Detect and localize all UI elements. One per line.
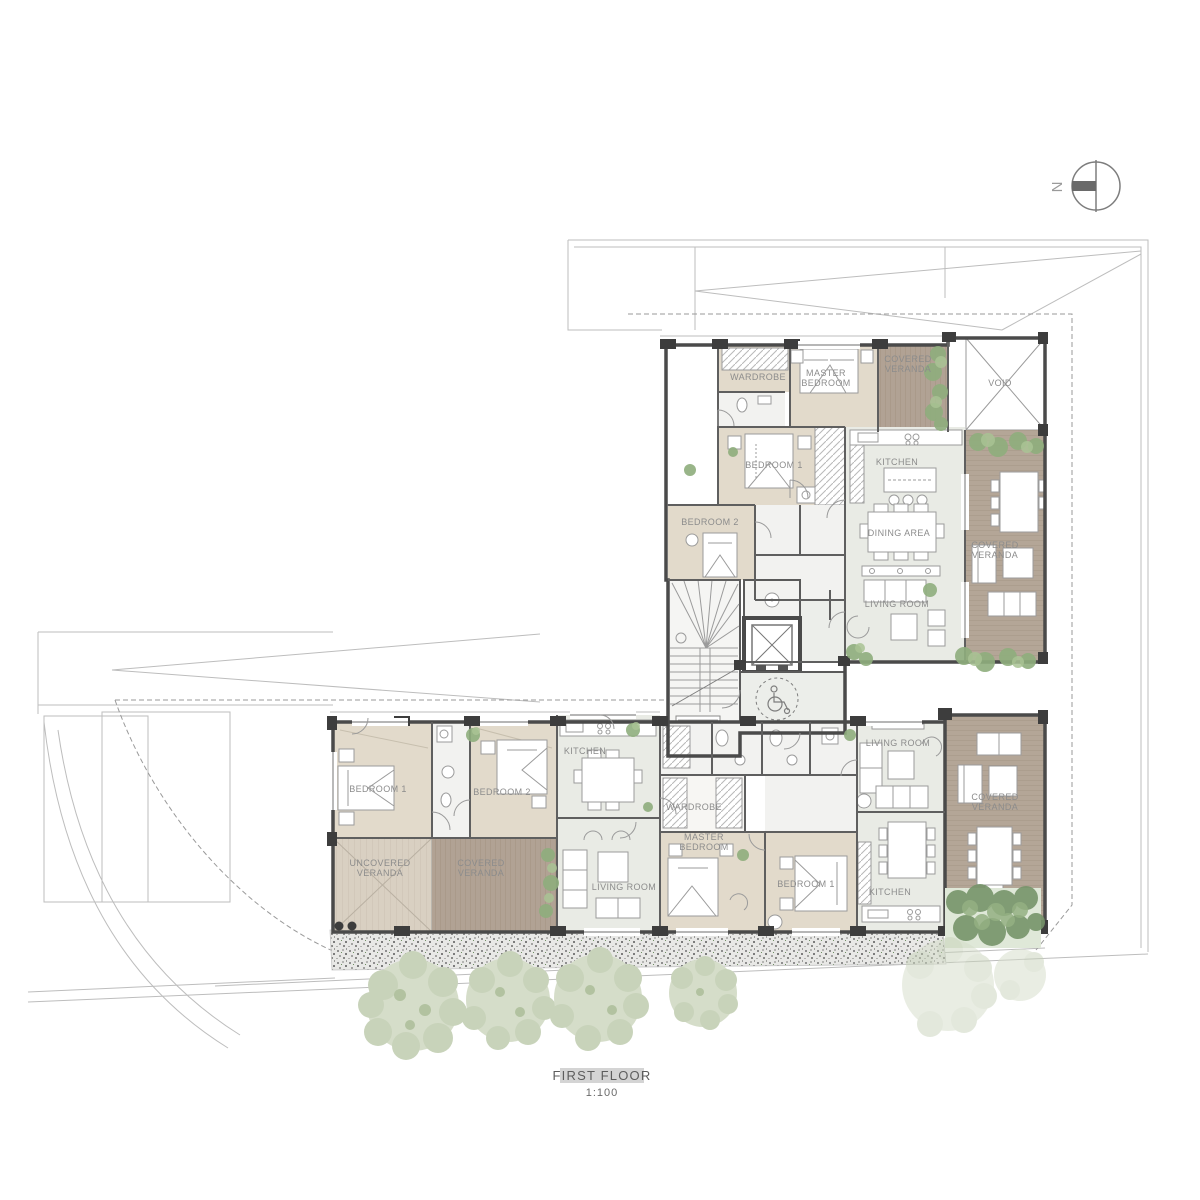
tree	[669, 956, 738, 1030]
label-west-uncovered-veranda: UNCOVEREDVERANDA	[349, 858, 410, 878]
drawing-title: FIRST FLOOR	[553, 1068, 652, 1083]
label-upper-covered-veranda-top: COVEREDVERANDA	[884, 354, 931, 374]
label-upper-bedroom-2: BEDROOM 2	[681, 517, 739, 527]
label-west-kitchen: KITCHEN	[564, 746, 606, 756]
elevator	[744, 618, 800, 672]
floor-plan-canvas: WARDROBE MASTERBEDROOM COVEREDVERANDA VO…	[0, 0, 1200, 1200]
tree-faded	[902, 937, 1046, 1037]
label-upper-bedroom-1: BEDROOM 1	[745, 460, 803, 470]
label-west-bedroom-2: BEDROOM 2	[473, 787, 531, 797]
label-upper-dining-area: DINING AREA	[868, 528, 930, 538]
north-label: N	[1049, 182, 1066, 193]
label-upper-kitchen: KITCHEN	[876, 457, 918, 467]
label-west-covered-veranda: COVEREDVERANDA	[457, 858, 504, 878]
label-east-master-bedroom: MASTERBEDROOM	[679, 832, 728, 852]
label-upper-master-bedroom: MASTERBEDROOM	[801, 368, 850, 388]
floor-plan-svg: WARDROBE MASTERBEDROOM COVEREDVERANDA VO…	[0, 0, 1200, 1200]
label-east-living-room: LIVING ROOM	[866, 738, 930, 748]
label-upper-living-room: LIVING ROOM	[865, 599, 929, 609]
label-east-bedroom-1: BEDROOM 1	[777, 879, 835, 889]
label-east-covered-veranda: COVEREDVERANDA	[971, 792, 1018, 812]
label-upper-void: VOID	[988, 378, 1012, 388]
label-upper-wardrobe: WARDROBE	[730, 372, 786, 382]
label-east-wardrobe: WARDROBE	[666, 802, 722, 812]
drawing-scale: 1:100	[586, 1087, 619, 1099]
north-arrow-icon: N	[1049, 160, 1120, 212]
title-block: FIRST FLOOR 1:100	[553, 1068, 652, 1099]
label-east-kitchen: KITCHEN	[869, 887, 911, 897]
label-west-bedroom-1: BEDROOM 1	[349, 784, 407, 794]
label-west-living-room: LIVING ROOM	[592, 882, 656, 892]
label-upper-covered-veranda-side: COVEREDVERANDA	[971, 540, 1018, 560]
